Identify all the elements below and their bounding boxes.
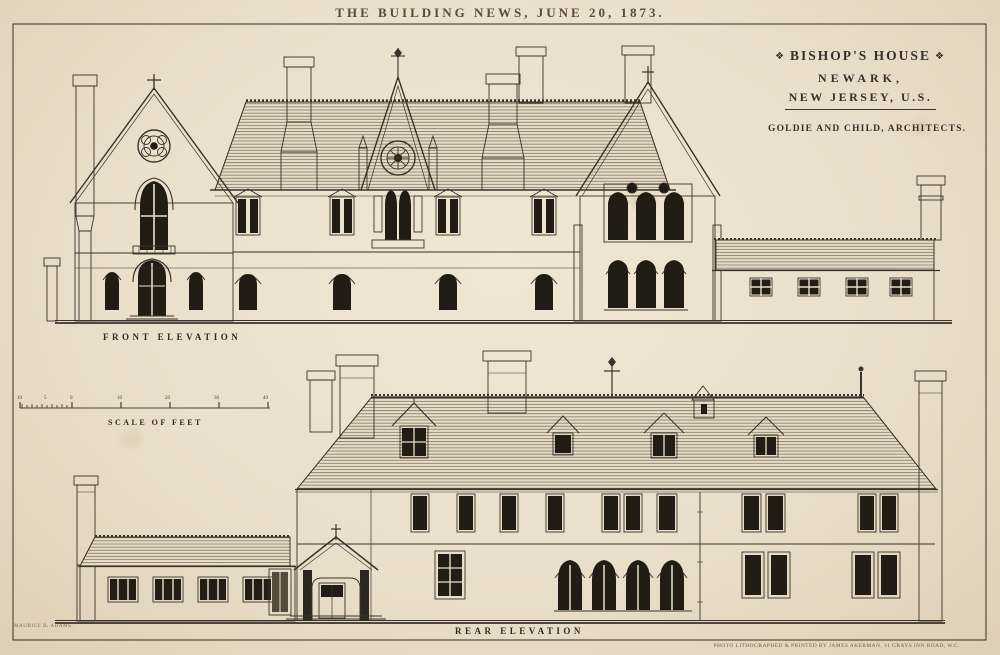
scale-tick-label: 40 [263, 396, 268, 401]
plate-region: NEW JERSEY, U.S. [785, 90, 937, 110]
scale-tick-label: 10 [17, 396, 22, 401]
title-block: ❖BISHOP'S HOUSE❖ NEWARK, NEW JERSEY, U.S… [768, 48, 953, 134]
front-service-wing [712, 176, 945, 321]
rear-left-wing [74, 476, 296, 621]
plate-title: ❖BISHOP'S HOUSE❖ [768, 48, 953, 64]
plate-title-text: BISHOP'S HOUSE [790, 48, 931, 63]
artist-credit: MAURICE B. ADAMS. [14, 624, 73, 629]
scale-tick-label: 30 [214, 396, 219, 401]
front-left-wing [70, 74, 238, 321]
printer-credit: PHOTO LITHOGRAPHED & PRINTED BY JAMES AK… [540, 643, 960, 649]
masthead: THE BUILDING NEWS, JUNE 20, 1873. [0, 5, 1000, 21]
scale-tick-label: 5 [44, 396, 47, 401]
lithograph-plate: THE BUILDING NEWS, JUNE 20, 1873. ❖BISHO… [0, 0, 1000, 655]
scale-tick-label: 20 [165, 396, 170, 401]
front-ground-floor-windows [235, 274, 557, 310]
front-elevation-label: FRONT ELEVATION [103, 332, 241, 342]
quatrefoil-ornament-icon: ❖ [771, 51, 790, 62]
scale-bar [20, 402, 270, 408]
architects-credit: GOLDIE AND CHILD, ARCHITECTS. [768, 124, 953, 134]
scale-tick-label: 10 [117, 396, 122, 401]
rear-elevation-drawing [55, 351, 946, 623]
plate-city: NEWARK, [768, 71, 953, 86]
scale-tick-label: 0 [70, 396, 73, 401]
quatrefoil-ornament-icon: ❖ [931, 51, 950, 62]
scale-of-feet-label: SCALE OF FEET [108, 418, 203, 427]
rear-main-block [295, 351, 946, 621]
rear-elevation-label: REAR ELEVATION [455, 626, 584, 636]
